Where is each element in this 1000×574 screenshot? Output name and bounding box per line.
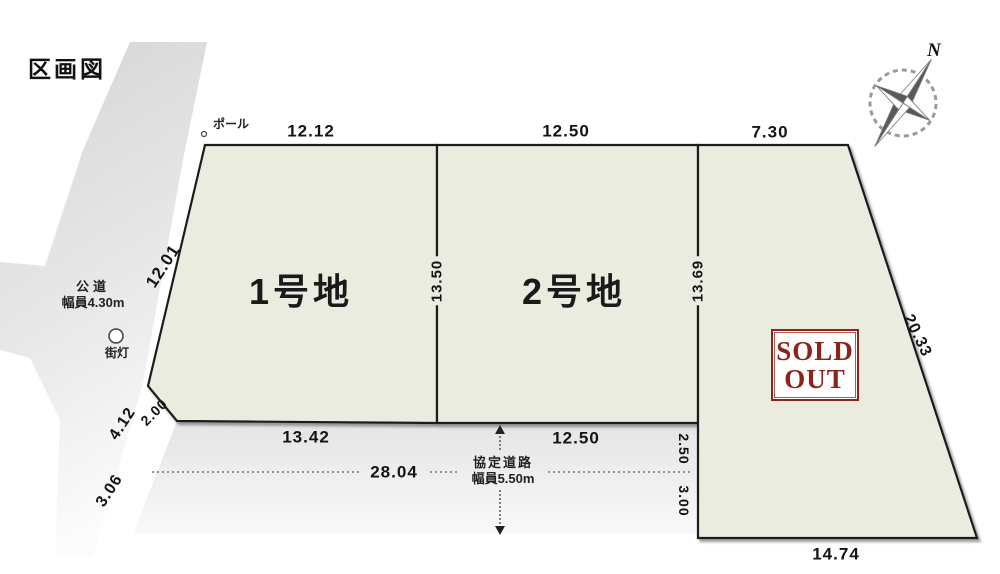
dim-divider-lot1-lot2: 13.50 — [429, 257, 446, 306]
lot1-name: 1号地 — [249, 274, 353, 310]
dim-top-lot3: 7.30 — [751, 124, 788, 141]
dim-divider-lot2-lot3: 13.69 — [690, 257, 707, 306]
agreement-road-name: 協定道路 — [473, 455, 533, 471]
dim-lot3-bottom: 14.74 — [812, 546, 860, 563]
street-light-label: 街灯 — [105, 347, 129, 359]
dim-road-lower-half: 3.00 — [677, 485, 691, 516]
dim-road-total: 28.04 — [370, 464, 418, 481]
page-title: 区画図 — [28, 50, 106, 84]
pole-label: ポール — [213, 118, 249, 130]
sold-out-line1: SOLD — [776, 337, 854, 365]
dim-bottom-lot1: 13.42 — [282, 429, 330, 446]
plot-map-drawing — [0, 0, 1000, 574]
street-light-marker — [109, 329, 123, 343]
plot-map: 区画図 N ポール 12.12 12.50 7.30 12.01 4.12 2.… — [0, 0, 1000, 574]
lot2-name: 2号地 — [522, 274, 626, 310]
agreement-road-width: 幅員5.50m — [472, 471, 535, 487]
dim-road-upper-half: 2.50 — [677, 433, 691, 464]
public-road-width: 幅員4.30m — [62, 295, 125, 311]
sold-out-line2: OUT — [784, 365, 846, 393]
dim-bottom-lot2: 12.50 — [552, 430, 600, 447]
dim-top-lot2: 12.50 — [542, 123, 590, 140]
sold-out-badge: SOLD OUT — [771, 329, 859, 401]
public-road-name: 公道 — [76, 279, 110, 295]
compass-north-label: N — [927, 40, 941, 62]
dim-top-lot1: 12.12 — [287, 123, 335, 140]
pole-marker — [202, 132, 207, 137]
compass-icon — [847, 41, 959, 164]
